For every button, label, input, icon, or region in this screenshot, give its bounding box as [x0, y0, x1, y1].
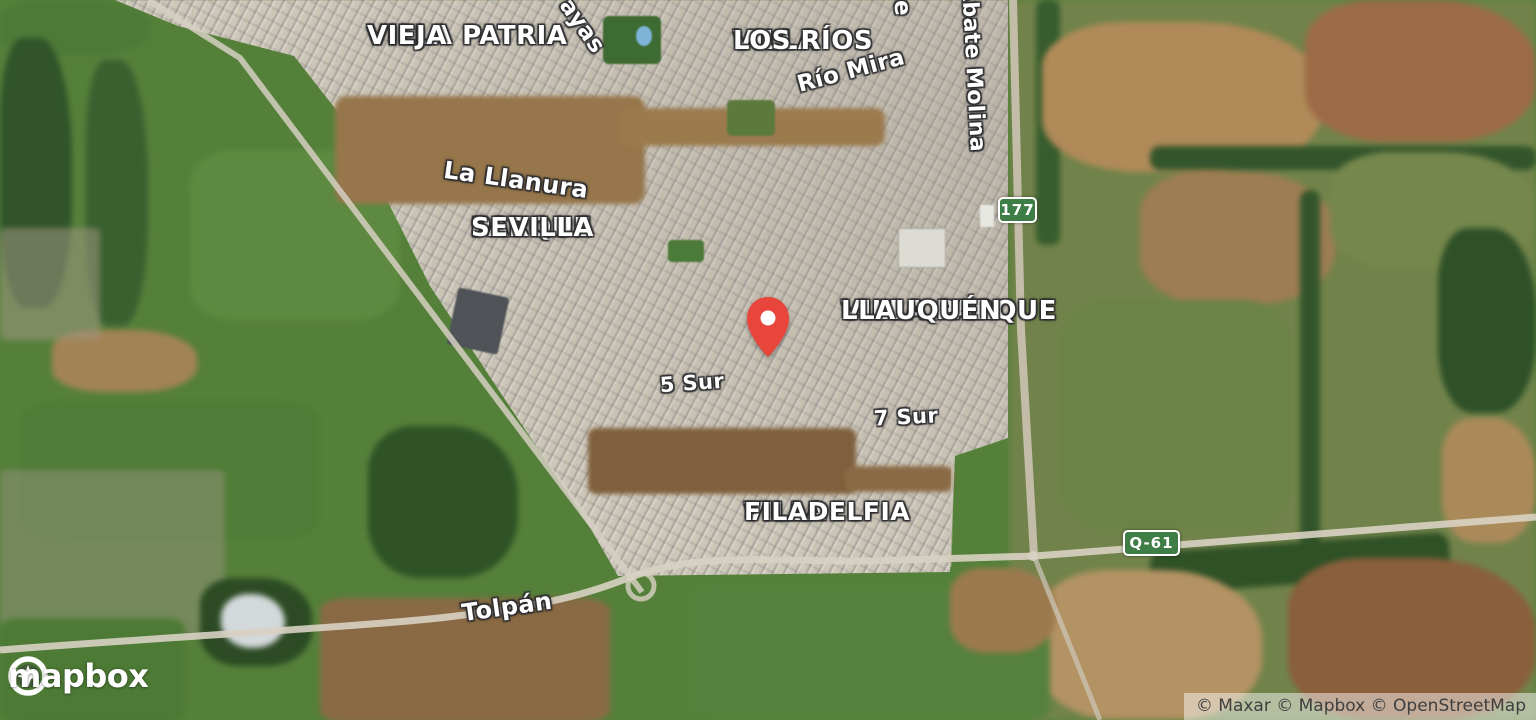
mapbox-wordmark: mapbox: [8, 657, 148, 695]
map-canvas[interactable]: VILLA PATRIA VIEJA VILLA LOS RÍOS PARQUE…: [0, 0, 1536, 720]
road-177-south: [1034, 556, 1100, 720]
street-label-7-sur: 7 Sur: [873, 403, 939, 430]
label-line: FILADELFIA: [744, 496, 910, 527]
junction-dot: [1028, 551, 1038, 561]
label-line: LLAUQUÉN: [841, 296, 1001, 327]
map-marker-pin[interactable]: [746, 296, 790, 358]
road-diagonal: [148, 0, 642, 592]
street-label-partial-e: e: [889, 0, 916, 17]
label-line: VIEJA: [367, 21, 447, 52]
street-label-5-sur: 5 Sur: [659, 369, 725, 397]
roads-layer: [0, 0, 1536, 720]
route-shield-177: 177: [998, 197, 1037, 223]
label-line: LOS RÍOS: [733, 26, 873, 57]
map-attribution[interactable]: © Maxar © Mapbox © OpenStreetMap: [1184, 693, 1536, 720]
label-line: SEVILLA: [471, 213, 594, 244]
route-shield-q61: Q-61: [1123, 530, 1180, 556]
road-177-abate-molina: [1013, 0, 1034, 556]
road-tolpan-q61: [0, 517, 1536, 650]
road-filadelfia-east: [950, 456, 953, 567]
